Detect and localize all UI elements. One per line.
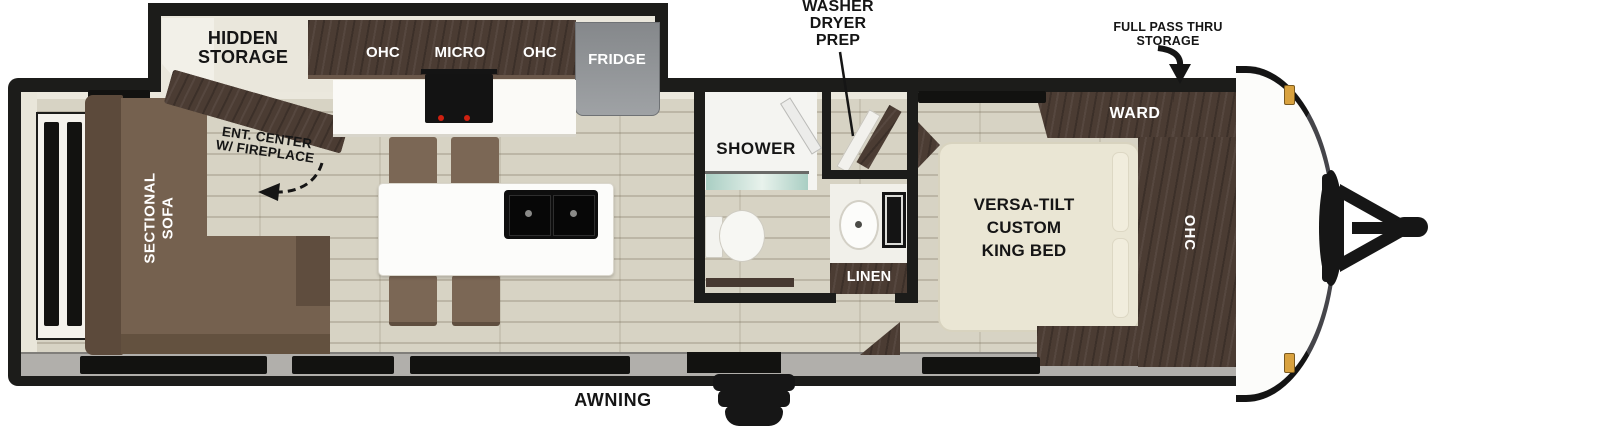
entry-step bbox=[725, 406, 783, 426]
ohc-right-label: OHC bbox=[504, 45, 576, 61]
bed-foot-cabinet bbox=[1037, 326, 1138, 366]
entry-door bbox=[687, 352, 781, 373]
micro-label: MICRO bbox=[424, 45, 496, 61]
sofa-armrest bbox=[296, 236, 330, 306]
bedroom-ohc-label: OHC bbox=[1181, 215, 1197, 251]
dining-chair bbox=[451, 137, 499, 187]
bathroom-wall-left bbox=[694, 92, 705, 300]
bed-label: VERSA-TILT CUSTOM KING BED bbox=[944, 194, 1104, 263]
washer-closet-wall-left bbox=[822, 92, 831, 178]
full-pass-thru-label: FULL PASS THRU STORAGE bbox=[1106, 20, 1230, 49]
front-cap bbox=[1236, 66, 1336, 402]
bathroom-threshold bbox=[706, 278, 794, 287]
living-bottom-window-1 bbox=[80, 356, 267, 374]
hitch-coupler bbox=[1394, 217, 1428, 237]
bed-pillow bbox=[1112, 152, 1129, 232]
bathroom-wall-bottom bbox=[694, 293, 836, 303]
wall-liner-rear bbox=[21, 92, 37, 352]
bedroom-wall bbox=[907, 92, 918, 303]
ward-label: WARD bbox=[1096, 106, 1174, 123]
marker-light-top bbox=[1284, 85, 1295, 105]
ward-front-cabinet bbox=[1173, 92, 1243, 142]
cooktop bbox=[425, 74, 493, 123]
linen-label: LINEN bbox=[831, 270, 907, 285]
bedroom-bottom-window bbox=[922, 357, 1040, 374]
entry-step bbox=[718, 390, 790, 407]
ohc-left-label: OHC bbox=[347, 45, 419, 61]
cooktop-knob bbox=[464, 115, 470, 121]
living-bottom-window-2 bbox=[292, 356, 394, 374]
shower-glass bbox=[706, 174, 808, 190]
fridge-label: FRIDGE bbox=[578, 52, 656, 68]
dining-chair bbox=[389, 137, 437, 187]
washer-dryer-prep-label: WASHER DRYER PREP bbox=[788, 0, 888, 50]
sink-faucet-dot bbox=[570, 210, 577, 217]
cooktop-knob bbox=[438, 115, 444, 121]
bed-pillow bbox=[1112, 238, 1129, 318]
dining-chair bbox=[389, 275, 437, 326]
sofa-label: SECTIONAL SOFA bbox=[142, 172, 178, 263]
toilet-bowl bbox=[719, 210, 765, 262]
hidden-storage-label: HIDDEN STORAGE bbox=[172, 29, 314, 67]
awning-label: AWNING bbox=[552, 391, 674, 410]
entry-step bbox=[713, 374, 795, 391]
marker-light-bottom bbox=[1284, 353, 1295, 373]
vanity-mirror bbox=[882, 192, 906, 248]
washer-closet-wall-bottom bbox=[822, 170, 907, 179]
rear-window-pane bbox=[67, 122, 82, 326]
floorplan: SECTIONAL SOFA HIDDEN STORAGE ENT. CENTE… bbox=[0, 0, 1600, 432]
dining-chair bbox=[452, 275, 500, 326]
sink-faucet-dot bbox=[525, 210, 532, 217]
living-bottom-window-3 bbox=[410, 356, 630, 374]
rear-window-pane bbox=[44, 122, 59, 326]
shower-label: SHOWER bbox=[708, 140, 804, 158]
bedroom-top-window bbox=[918, 91, 1046, 103]
fridge bbox=[575, 22, 660, 116]
sofa-front-edge bbox=[121, 334, 330, 354]
sink-drain-dot bbox=[855, 221, 862, 228]
